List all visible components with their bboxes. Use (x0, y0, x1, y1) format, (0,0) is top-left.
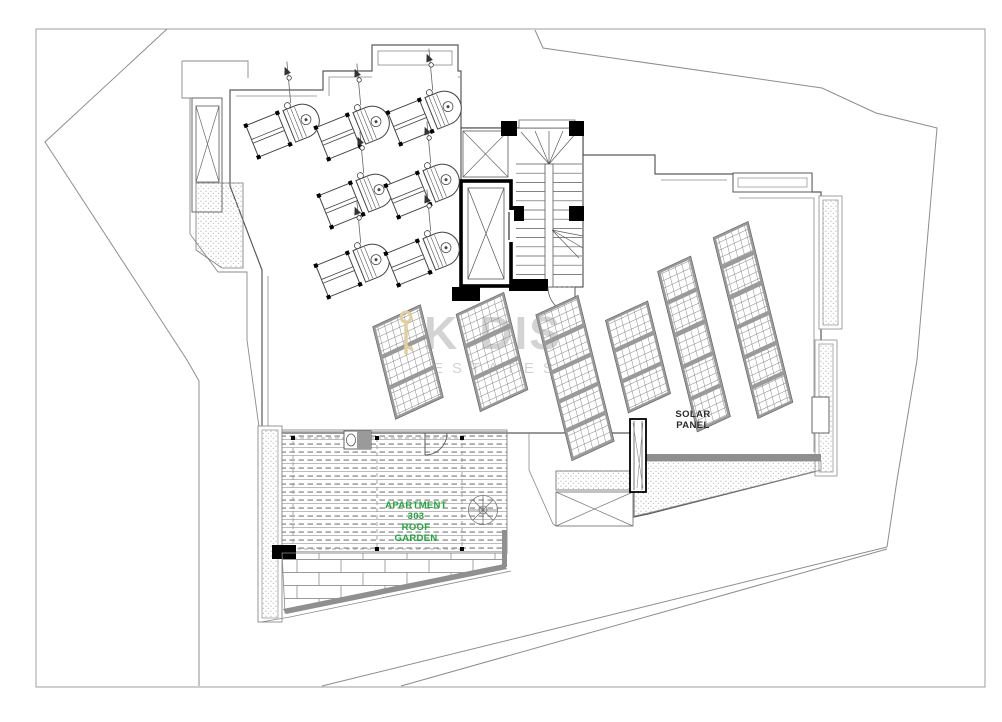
apartment-label-line2: 303 (408, 511, 425, 522)
elevator-shaft (461, 181, 514, 286)
apartment-label-line3: ROOF (402, 522, 431, 533)
floor-plan-drawing: SOLAR PANEL APARTMENT 303 ROOF GARDEN (0, 0, 1002, 722)
parapet-strip-right (502, 530, 507, 567)
tree-icon (469, 496, 498, 525)
roof-parapet-box (733, 173, 812, 192)
umbrella-icon (281, 65, 290, 75)
sink-icon (344, 431, 371, 449)
ladder-icon (630, 419, 646, 492)
elevator-door (506, 210, 514, 242)
parapet-band-bottom (634, 454, 821, 516)
apartment-label-line1: APARTMENT (385, 500, 447, 511)
roof-garden (258, 426, 511, 622)
solar-panel-label-line2: PANEL (676, 420, 710, 431)
roof-plan-sheet: SOLAR PANEL APARTMENT 303 ROOF GARDEN K … (0, 0, 1002, 722)
gravel-lightwell (196, 183, 243, 268)
roof-drain-box (812, 397, 829, 433)
apartment-label-line4: GARDEN (395, 533, 438, 544)
gravel-strip-left (262, 430, 278, 618)
solar-panel-label-line1: SOLAR (675, 409, 710, 420)
stair-stringer (545, 164, 553, 287)
